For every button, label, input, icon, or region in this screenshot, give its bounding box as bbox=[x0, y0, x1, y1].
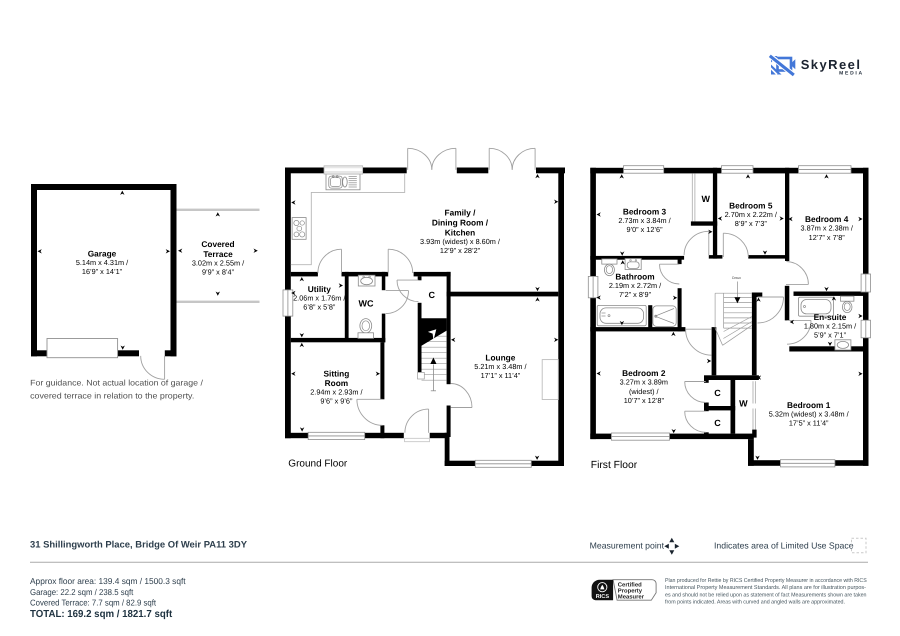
svg-text:9’6” x 9’6”: 9’6” x 9’6” bbox=[320, 397, 353, 406]
svg-text:16’9” x 14’1”: 16’9” x 14’1” bbox=[82, 267, 123, 276]
svg-text:Certified: Certified bbox=[618, 582, 642, 589]
svg-text:Family /: Family / bbox=[445, 208, 477, 218]
svg-text:es and should not be relied up: es and should not be relied upon as stat… bbox=[665, 591, 867, 598]
svg-text:2.06m x 1.76m /: 2.06m x 1.76m / bbox=[293, 294, 346, 303]
svg-text:7’2” x 8’9”: 7’2” x 8’9” bbox=[619, 290, 652, 299]
svg-text:First Floor: First Floor bbox=[591, 460, 638, 471]
svg-text:C: C bbox=[429, 290, 436, 300]
svg-text:Room: Room bbox=[325, 378, 349, 388]
svg-text:Covered: Covered bbox=[201, 239, 234, 249]
svg-text:(widest) /: (widest) / bbox=[629, 387, 660, 396]
svg-text:Kitchen: Kitchen bbox=[445, 227, 475, 237]
svg-text:covered terrace in relation to: covered terrace in relation to the prope… bbox=[30, 392, 194, 401]
svg-text:Measurement point: Measurement point bbox=[590, 541, 665, 551]
svg-text:C: C bbox=[714, 388, 721, 398]
svg-text:Measurer: Measurer bbox=[618, 594, 645, 601]
svg-text:8’9” x 7’3”: 8’9” x 7’3” bbox=[735, 219, 768, 228]
svg-text:TOTAL: 169.2 sqm / 1821.7 sqft: TOTAL: 169.2 sqm / 1821.7 sqft bbox=[30, 609, 173, 620]
svg-text:Bedroom 4: Bedroom 4 bbox=[805, 214, 849, 224]
svg-text:Bedroom 5: Bedroom 5 bbox=[729, 200, 773, 210]
svg-text:2.73m x 3.84m /: 2.73m x 3.84m / bbox=[618, 216, 671, 225]
svg-text:9’9” x 8’4”: 9’9” x 8’4” bbox=[202, 268, 235, 277]
svg-text:En-suite: En-suite bbox=[814, 312, 847, 322]
svg-text:Utility: Utility bbox=[308, 284, 331, 294]
svg-text:Dining Room /: Dining Room / bbox=[432, 218, 489, 228]
svg-text:MEDIA: MEDIA bbox=[839, 71, 864, 77]
svg-text:Plan produced for Rettie by RI: Plan produced for Rettie by RICS Certifi… bbox=[665, 577, 867, 584]
svg-text:12’7” x 7’8”: 12’7” x 7’8” bbox=[809, 233, 846, 242]
svg-text:Property: Property bbox=[618, 588, 643, 595]
svg-text:Bedroom 2: Bedroom 2 bbox=[622, 368, 666, 378]
svg-text:2.70m x 2.22m /: 2.70m x 2.22m / bbox=[725, 210, 778, 219]
svg-text:3.02m x 2.55m /: 3.02m x 2.55m / bbox=[192, 259, 245, 268]
svg-text:Lounge: Lounge bbox=[485, 352, 515, 362]
svg-text:W: W bbox=[739, 399, 748, 409]
svg-text:31 Shillingworth Place, Bridge: 31 Shillingworth Place, Bridge Of Weir P… bbox=[30, 538, 248, 549]
svg-text:Ground Floor: Ground Floor bbox=[288, 458, 348, 469]
svg-text:17’1” x 11’4”: 17’1” x 11’4” bbox=[481, 371, 521, 380]
svg-text:9’0” x 12’6”: 9’0” x 12’6” bbox=[626, 225, 663, 234]
svg-text:WC: WC bbox=[359, 299, 374, 309]
svg-text:5.32m (widest) x 3.48m /: 5.32m (widest) x 3.48m / bbox=[769, 410, 850, 419]
svg-text:2.19m x 2.72m /: 2.19m x 2.72m / bbox=[609, 281, 662, 290]
svg-text:RICS: RICS bbox=[596, 594, 610, 600]
svg-text:3.87m x 2.38m /: 3.87m x 2.38m / bbox=[801, 224, 854, 233]
svg-text:6’8” x 5’8”: 6’8” x 5’8” bbox=[303, 303, 336, 312]
svg-text:1.80m x 2.15m /: 1.80m x 2.15m / bbox=[804, 322, 857, 331]
svg-text:For guidance. Not actual locat: For guidance. Not actual location of gar… bbox=[30, 379, 204, 388]
svg-text:Indicates area of Limited Use: Indicates area of Limited Use Space bbox=[714, 541, 854, 551]
svg-text:5.14m x 4.31m /: 5.14m x 4.31m / bbox=[76, 258, 129, 267]
svg-text:Approx floor area: 139.4 sqm /: Approx floor area: 139.4 sqm / 1500.3 sq… bbox=[30, 576, 186, 586]
svg-text:Bedroom 1: Bedroom 1 bbox=[787, 400, 831, 410]
svg-text:3.27m x 3.89m: 3.27m x 3.89m bbox=[620, 378, 668, 387]
svg-text:Covered Terrace: 7.7 sqm / 82.: Covered Terrace: 7.7 sqm / 82.9 sqft bbox=[30, 598, 157, 608]
svg-text:5.21m x 3.48m /: 5.21m x 3.48m / bbox=[474, 362, 527, 371]
svg-text:Down: Down bbox=[732, 276, 741, 280]
svg-text:W: W bbox=[702, 194, 711, 204]
svg-text:10’7” x 12’8”: 10’7” x 12’8” bbox=[624, 396, 665, 405]
svg-text:International Property Measur: International Property Measurement Stand… bbox=[665, 584, 866, 591]
svg-text:2.94m x 2.93m /: 2.94m x 2.93m / bbox=[310, 387, 363, 396]
svg-text:17’5” x 11’4”: 17’5” x 11’4” bbox=[789, 419, 829, 428]
svg-text:Terrace: Terrace bbox=[203, 249, 233, 259]
svg-text:from points indicated. Areas w: from points indicated. Areas with curved… bbox=[665, 599, 845, 606]
svg-text:C: C bbox=[714, 418, 721, 428]
svg-text:Garage: 22.2 sqm / 238.5 sqft: Garage: 22.2 sqm / 238.5 sqft bbox=[30, 587, 134, 597]
svg-text:Garage: Garage bbox=[88, 248, 117, 258]
svg-text:Bedroom 3: Bedroom 3 bbox=[623, 206, 667, 216]
svg-text:Bathroom: Bathroom bbox=[615, 272, 654, 282]
svg-text:3.93m (widest) x 8.60m /: 3.93m (widest) x 8.60m / bbox=[420, 237, 501, 246]
svg-text:5’9” x 7’1”: 5’9” x 7’1” bbox=[814, 331, 847, 340]
svg-text:12’9” x 28’2”: 12’9” x 28’2” bbox=[440, 246, 481, 255]
